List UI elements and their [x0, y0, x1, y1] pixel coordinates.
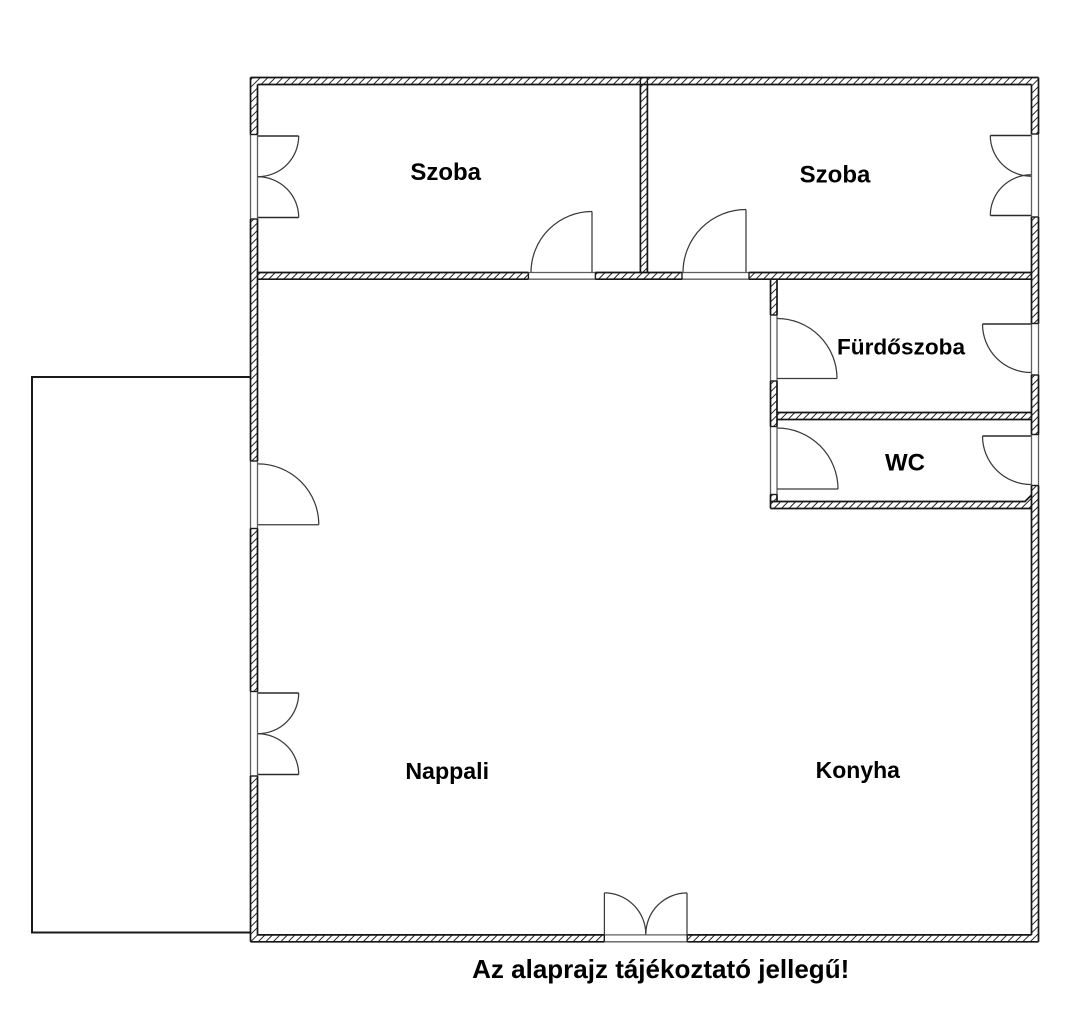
svg-text:Konyha: Konyha	[816, 757, 901, 783]
svg-text:WC: WC	[885, 449, 925, 476]
svg-text:Az alaprajz tájékoztató jelleg: Az alaprajz tájékoztató jellegű!	[472, 954, 849, 984]
svg-text:Nappali: Nappali	[405, 758, 489, 784]
svg-text:Szoba: Szoba	[410, 159, 481, 186]
svg-text:Szoba: Szoba	[800, 162, 871, 189]
svg-text:Fürdőszoba: Fürdőszoba	[837, 334, 965, 359]
